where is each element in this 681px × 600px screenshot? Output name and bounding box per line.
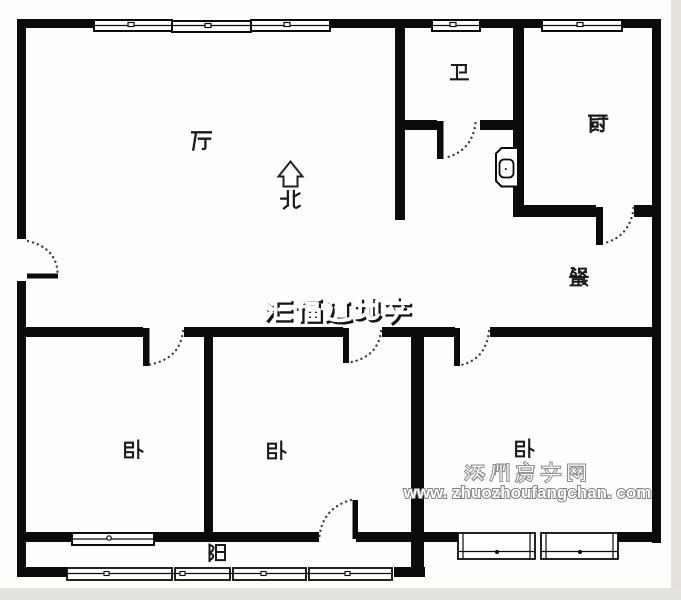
svg-text:www. zhuozhoufangchan. com: www. zhuozhoufangchan. com: [403, 483, 652, 502]
